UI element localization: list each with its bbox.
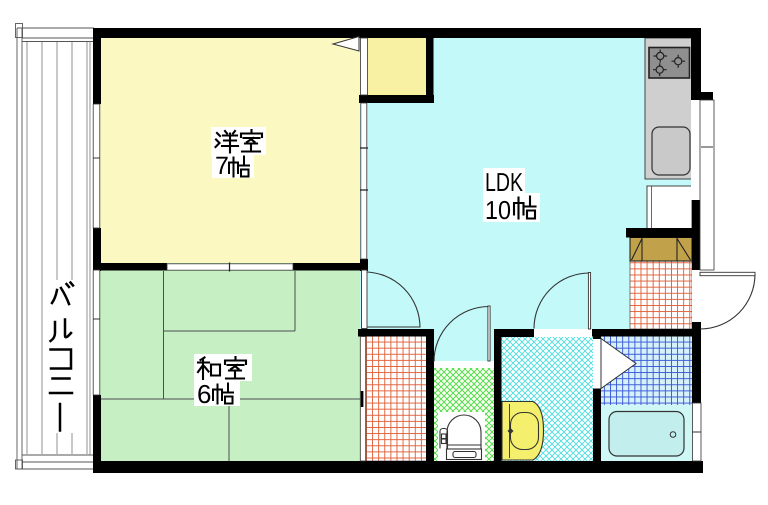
svg-text:7: 7 — [215, 152, 229, 180]
svg-text:10: 10 — [485, 195, 511, 225]
svg-text:6: 6 — [197, 379, 211, 409]
svg-text:LDK: LDK — [485, 167, 523, 197]
